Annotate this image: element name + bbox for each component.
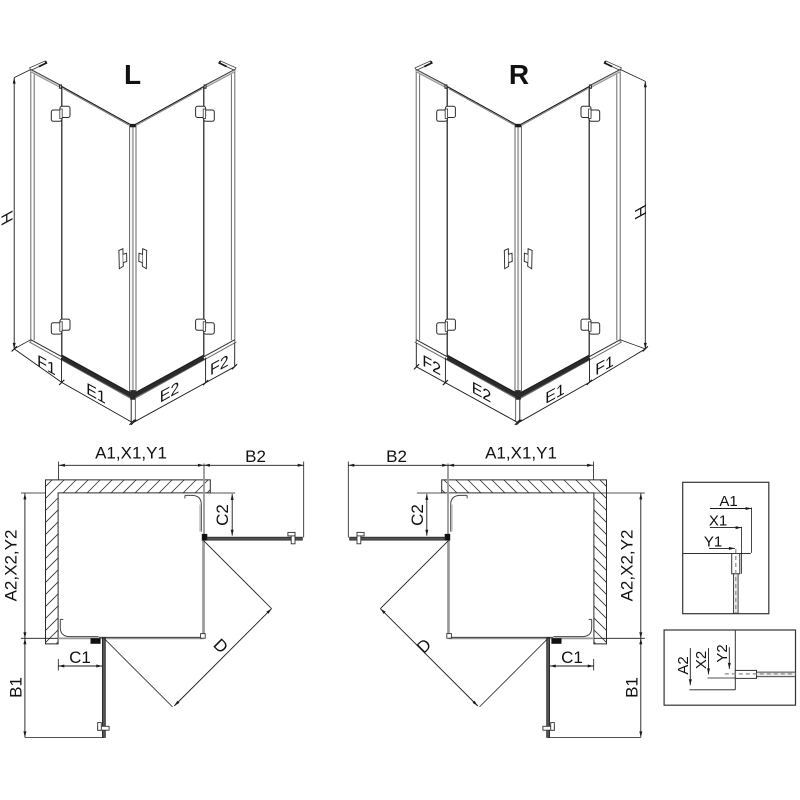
svg-text:B2: B2 bbox=[245, 447, 266, 466]
svg-text:A1: A1 bbox=[719, 493, 737, 510]
svg-text:Y1: Y1 bbox=[704, 534, 722, 551]
svg-text:B2: B2 bbox=[386, 447, 407, 466]
svg-text:C1: C1 bbox=[69, 648, 91, 667]
svg-text:C2: C2 bbox=[408, 504, 427, 526]
svg-text:B1: B1 bbox=[7, 677, 26, 698]
svg-text:A2,X2,Y2: A2,X2,Y2 bbox=[1, 530, 20, 602]
svg-text:A2: A2 bbox=[675, 656, 692, 674]
svg-text:A1,X1,Y1: A1,X1,Y1 bbox=[485, 444, 557, 463]
svg-text:C1: C1 bbox=[561, 648, 583, 667]
svg-text:X2: X2 bbox=[693, 651, 710, 669]
svg-text:A1,X1,Y1: A1,X1,Y1 bbox=[95, 444, 167, 463]
svg-text:R: R bbox=[509, 59, 529, 90]
svg-text:L: L bbox=[124, 59, 141, 90]
svg-text:Y2: Y2 bbox=[714, 644, 731, 662]
svg-text:B1: B1 bbox=[622, 677, 641, 698]
svg-text:A2,X2,Y2: A2,X2,Y2 bbox=[617, 530, 636, 602]
svg-text:X1: X1 bbox=[709, 513, 727, 530]
svg-text:C2: C2 bbox=[213, 504, 232, 526]
